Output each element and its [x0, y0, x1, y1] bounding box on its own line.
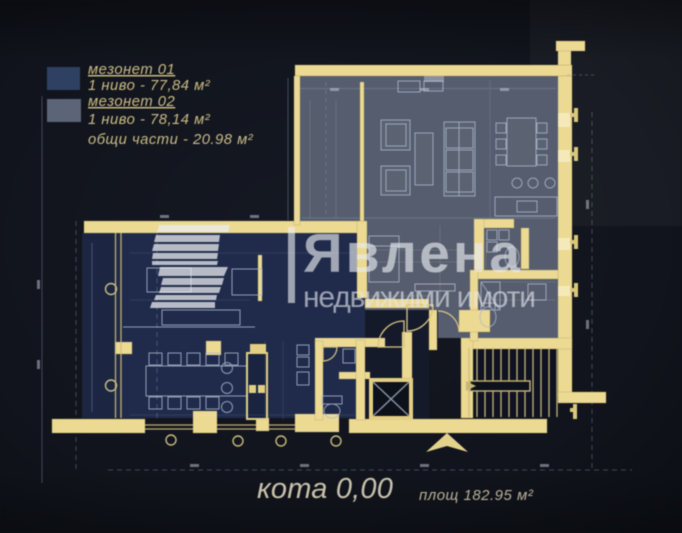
svg-text:недвижими имоти: недвижими имоти: [303, 281, 536, 314]
svg-text:кота 0,00: кота 0,00: [257, 473, 393, 505]
svg-text:мезонет 01: мезонет 01: [88, 62, 175, 78]
svg-text:1 ниво - 78,14 м²: 1 ниво - 78,14 м²: [88, 112, 211, 128]
svg-text:мезонет 02: мезонет 02: [88, 94, 176, 110]
svg-text:площ 182.95 м²: площ 182.95 м²: [419, 487, 534, 504]
svg-text:общи части - 20.98 м²: общи части - 20.98 м²: [88, 132, 254, 148]
svg-text:1 ниво - 77,84 м²: 1 ниво - 77,84 м²: [88, 78, 211, 94]
